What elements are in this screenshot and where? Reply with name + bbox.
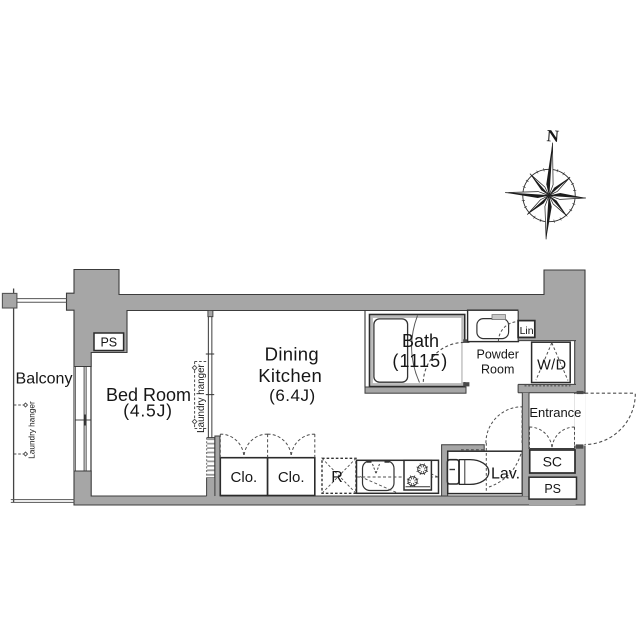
svg-text:(4.5J): (4.5J) [123,401,173,421]
svg-text:N: N [546,126,560,146]
svg-text:Laundry hanger: Laundry hanger [196,363,207,432]
svg-text:Lav.: Lav. [491,466,520,483]
svg-text:Laundry hanger: Laundry hanger [28,401,37,459]
svg-text:Entrance: Entrance [529,405,581,420]
svg-text:Powder: Powder [477,348,519,362]
svg-text:Clo.: Clo. [278,469,305,486]
svg-text:PS: PS [544,482,561,496]
svg-text:R: R [331,469,343,486]
svg-text:Balcony: Balcony [16,371,73,388]
svg-text:PS: PS [100,336,117,350]
svg-text:W/D: W/D [537,358,566,374]
svg-text:SC: SC [543,454,562,470]
svg-text:(6.4J): (6.4J) [269,386,315,405]
svg-text:Lin: Lin [520,325,534,337]
svg-text:Dining: Dining [265,344,319,365]
svg-text:Room: Room [481,363,514,377]
svg-text:Bath: Bath [402,331,439,351]
svg-text:Clo.: Clo. [231,469,258,486]
svg-text:(1115): (1115) [392,351,448,371]
svg-text:Kitchen: Kitchen [258,365,322,386]
